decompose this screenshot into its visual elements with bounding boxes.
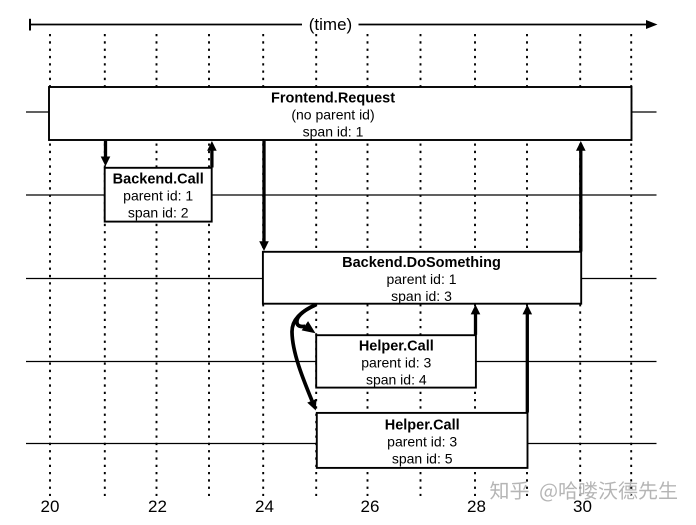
svg-text:24: 24 bbox=[255, 497, 274, 516]
svg-text:parent id: 3: parent id: 3 bbox=[387, 433, 457, 449]
svg-text:(no parent id): (no parent id) bbox=[291, 107, 374, 123]
svg-text:span id: 3: span id: 3 bbox=[391, 288, 452, 304]
svg-text:span id: 1: span id: 1 bbox=[303, 124, 364, 140]
svg-text:parent id: 1: parent id: 1 bbox=[386, 271, 456, 287]
svg-text:20: 20 bbox=[41, 497, 60, 516]
svg-text:span id: 4: span id: 4 bbox=[366, 371, 427, 387]
svg-text:span id: 2: span id: 2 bbox=[128, 205, 189, 221]
svg-text:Helper.Call: Helper.Call bbox=[359, 338, 434, 354]
svg-text:(time): (time) bbox=[309, 15, 352, 34]
svg-text:22: 22 bbox=[148, 497, 167, 516]
svg-text:parent id: 3: parent id: 3 bbox=[361, 354, 431, 370]
svg-text:Frontend.Request: Frontend.Request bbox=[271, 91, 395, 107]
svg-text:26: 26 bbox=[361, 497, 380, 516]
svg-text:Backend.Call: Backend.Call bbox=[113, 172, 204, 188]
svg-text:30: 30 bbox=[573, 497, 592, 516]
svg-text:Backend.DoSomething: Backend.DoSomething bbox=[342, 255, 501, 271]
svg-text:parent id: 1: parent id: 1 bbox=[123, 188, 193, 204]
svg-text:Helper.Call: Helper.Call bbox=[385, 417, 460, 433]
svg-text:28: 28 bbox=[467, 497, 486, 516]
svg-text:span id: 5: span id: 5 bbox=[392, 450, 453, 466]
